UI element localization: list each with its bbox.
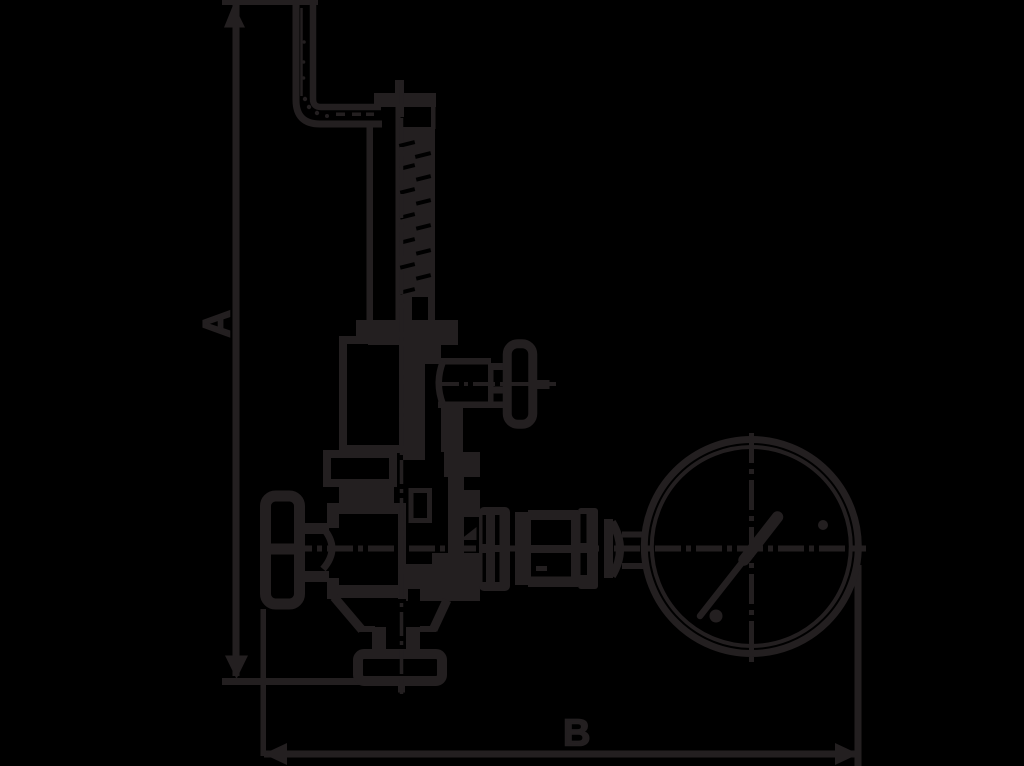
svg-text:A: A [197, 310, 239, 337]
svg-text:B: B [563, 713, 590, 755]
